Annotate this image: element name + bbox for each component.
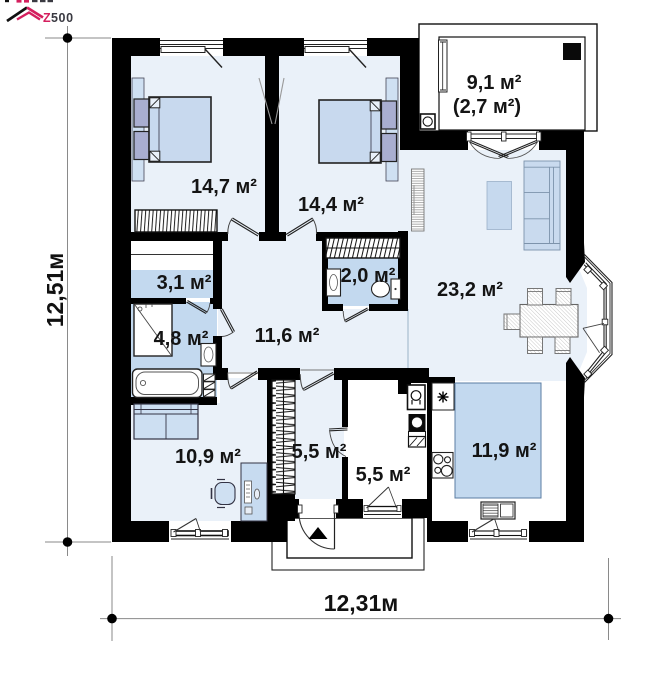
svg-text:12,51м: 12,51м <box>42 253 68 328</box>
svg-text:Z: Z <box>43 11 51 25</box>
svg-text:11,9 м²: 11,9 м² <box>472 440 537 462</box>
svg-text:5,5 м²: 5,5 м² <box>292 441 347 463</box>
svg-text:14,7 м²: 14,7 м² <box>191 176 257 198</box>
svg-text:3,1 м²: 3,1 м² <box>157 272 212 294</box>
svg-text:2,0 м²: 2,0 м² <box>341 265 396 287</box>
svg-text:5,5 м²: 5,5 м² <box>356 464 411 486</box>
svg-text:9,1 м²: 9,1 м² <box>467 72 522 94</box>
svg-text:4,8 м²: 4,8 м² <box>154 328 209 350</box>
svg-text:14,4 м²: 14,4 м² <box>298 194 364 216</box>
svg-text:500: 500 <box>51 11 74 25</box>
svg-text:(2,7 м²): (2,7 м²) <box>453 96 521 118</box>
svg-text:23,2 м²: 23,2 м² <box>437 279 503 301</box>
svg-text:12,31м: 12,31м <box>324 590 399 616</box>
svg-text:11,6 м²: 11,6 м² <box>255 325 320 347</box>
svg-text:10,9 м²: 10,9 м² <box>175 446 241 468</box>
